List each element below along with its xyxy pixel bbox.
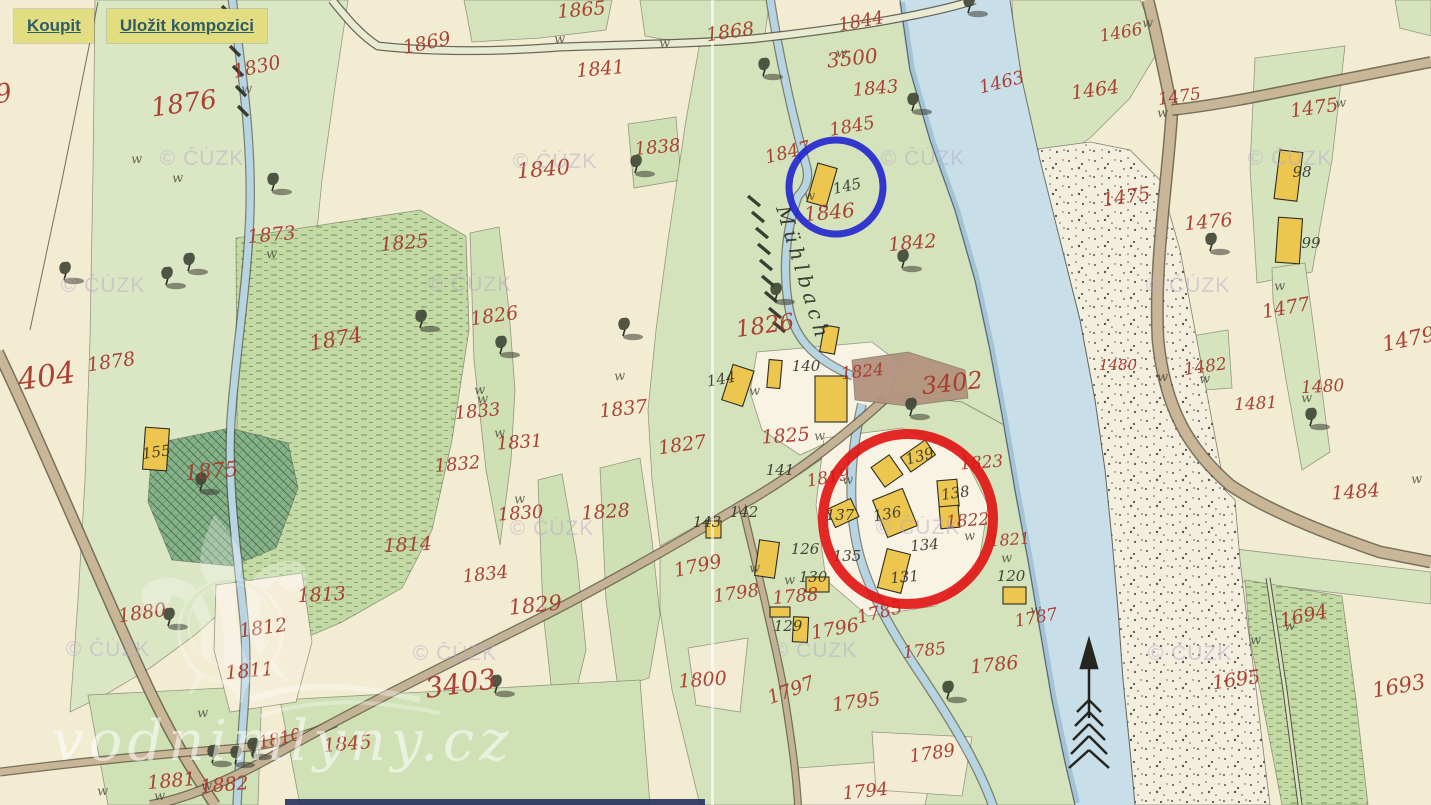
site-watermark-text: vodnimlyny.cz <box>52 709 514 774</box>
parcel-number: 1825 <box>379 230 429 256</box>
toolbar: Koupit Uložit kompozici <box>14 9 267 43</box>
parcel-number: 1846 <box>803 198 856 226</box>
parcel-number: 1873 <box>246 222 296 248</box>
parcel-number: 1843 <box>852 76 899 101</box>
parcel-number: 1480 <box>1301 376 1345 398</box>
house-number: 126 <box>791 540 820 558</box>
parcel-number: 1833 <box>454 399 501 424</box>
parcel-number: 1800 <box>678 667 728 692</box>
meadow-mark-icon: w <box>748 384 760 400</box>
meadow-mark-icon: w <box>813 429 825 445</box>
parcel-number: 1484 <box>1331 479 1381 504</box>
house-number: 143 <box>693 513 722 531</box>
cuzk-watermark: © ČÚZK <box>428 273 512 296</box>
ulozit-kompozici-button[interactable]: Uložit kompozici <box>107 9 267 43</box>
house-number: 141 <box>766 461 795 479</box>
cuzk-watermark: © ČÚZK <box>881 147 965 170</box>
map-sheet-border <box>285 799 705 805</box>
koupit-button[interactable]: Koupit <box>14 9 94 43</box>
cuzk-watermark: © ČÚZK <box>1148 642 1232 665</box>
cuzk-watermark: © ČÚZK <box>160 147 244 170</box>
meadow-mark-icon: w <box>1156 370 1168 386</box>
house-number: 131 <box>890 567 920 587</box>
house-number: 130 <box>799 568 828 586</box>
cuzk-watermark: © ČÚZK <box>513 150 597 173</box>
meadow-mark-icon: w <box>171 171 183 187</box>
parcel-number: 1480 <box>1099 356 1138 374</box>
meadow-mark-icon: w <box>613 369 625 385</box>
house-number: 129 <box>774 617 803 635</box>
parcel-number: 1814 <box>383 533 432 558</box>
meadow-mark-icon: w <box>1000 551 1012 567</box>
parcel-number: 1832 <box>434 452 481 477</box>
meadow-mark-icon: w <box>473 383 485 399</box>
meadow-mark-icon: w <box>1273 279 1285 295</box>
house-number: 142 <box>730 503 759 521</box>
parcel-number: 1842 <box>887 230 937 256</box>
parcel-number: 1841 <box>575 56 625 82</box>
historical-cadastral-map[interactable]: wwwwwwwwwwwwwwwwwwwwwwwwwwwwwwwwwwww Müh… <box>0 0 1431 805</box>
house-number: 137 <box>826 506 855 524</box>
cuzk-watermark: © ČÚZK <box>1248 147 1332 170</box>
parcel-number: 1476 <box>1183 209 1233 235</box>
meadow-mark-icon: w <box>265 247 277 263</box>
parcel-number: 1825 <box>761 423 811 448</box>
cuzk-watermark: © ČÚZK <box>773 639 857 662</box>
meadow-mark-icon: w <box>96 784 108 800</box>
cuzk-watermark: © ČÚZK <box>413 642 497 665</box>
parcel-number: 1831 <box>496 430 543 454</box>
parcel-number: 1788 <box>772 584 819 609</box>
cuzk-watermark: © ČÚZK <box>876 516 960 539</box>
cuzk-watermark: © ČÚZK <box>510 517 594 540</box>
cuzk-watermark: © ČÚZK <box>61 274 145 297</box>
house-number: 140 <box>792 357 821 375</box>
cuzk-watermark: © ČÚZK <box>1146 274 1230 297</box>
parcel-number: 1838 <box>634 135 681 160</box>
house-number: 120 <box>997 567 1026 585</box>
meadow-mark-icon: w <box>1249 633 1261 649</box>
meadow-mark-icon: w <box>240 82 252 98</box>
meadow-mark-icon: w <box>748 561 760 577</box>
house-number: 99 <box>1301 234 1321 252</box>
meadow-mark-icon: w <box>130 152 142 168</box>
meadow-mark-icon: w <box>658 36 670 52</box>
map-viewer: wwwwwwwwwwwwwwwwwwwwwwwwwwwwwwwwwwww Müh… <box>0 0 1431 805</box>
meadow-mark-icon: w <box>1141 16 1153 32</box>
meadow-mark-icon: w <box>1410 472 1422 488</box>
meadow-mark-icon: w <box>553 32 565 48</box>
parcel-number: 1481 <box>1234 393 1278 415</box>
parcel-number: 1882 <box>199 772 249 798</box>
